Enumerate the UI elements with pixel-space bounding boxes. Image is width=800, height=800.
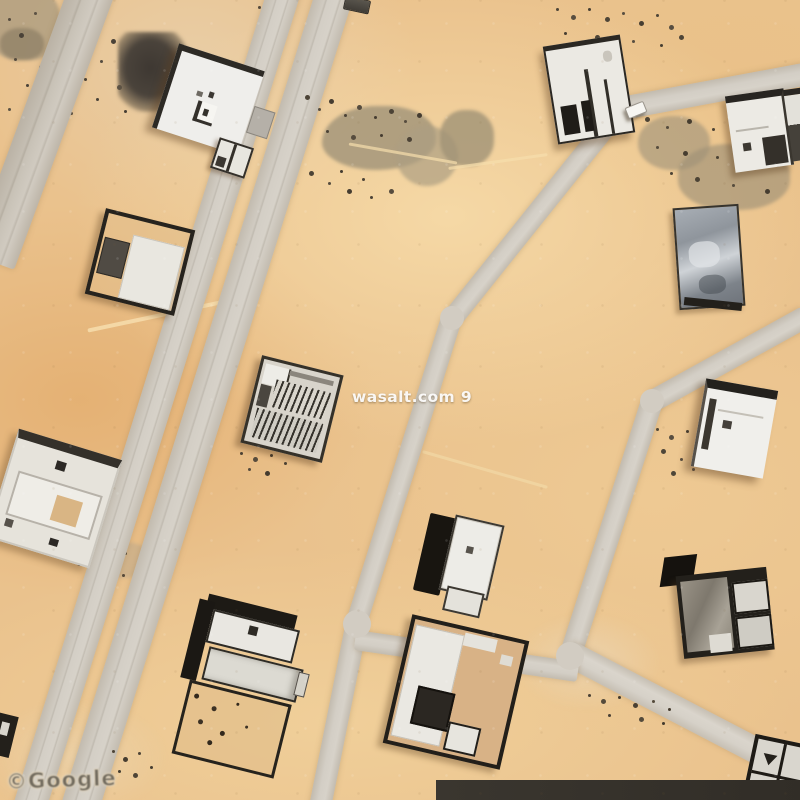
hut-ridge xyxy=(226,144,238,172)
road-junction xyxy=(640,389,664,413)
sand-track xyxy=(422,450,548,489)
party-wall xyxy=(604,79,616,134)
roof-vent xyxy=(743,142,752,151)
vegetation-specks xyxy=(236,446,239,449)
road-junction xyxy=(440,306,464,330)
building-dark-compound-east xyxy=(659,547,780,668)
roof-vent xyxy=(4,518,14,528)
building-under-construction xyxy=(240,355,343,463)
white-cell xyxy=(443,721,482,757)
scrub-patch xyxy=(440,110,494,166)
hut-dark-cell xyxy=(215,155,227,168)
roof-vent xyxy=(49,537,60,546)
satellite-map[interactable]: wasalt.com 9 ©Google xyxy=(0,0,800,800)
roof-strip xyxy=(462,633,498,653)
imagery-attribution-watermark: ©Google xyxy=(6,766,117,794)
vegetation-specks xyxy=(582,688,585,691)
bottom-dark-band xyxy=(436,780,800,800)
road-junction xyxy=(556,642,584,670)
platform-stain xyxy=(698,274,727,295)
compound-walls xyxy=(676,567,774,660)
road-junction xyxy=(343,610,371,638)
building-house-east xyxy=(691,378,778,478)
platform-stain xyxy=(688,241,721,269)
dark-cell xyxy=(560,104,581,136)
building-house-center xyxy=(410,509,503,617)
vegetation-specks xyxy=(0,0,3,3)
courtyard-trees xyxy=(192,683,196,687)
shadow-strip xyxy=(701,398,717,450)
white-cell xyxy=(731,578,771,614)
vegetation-specks xyxy=(300,86,303,89)
roof-vent xyxy=(722,420,732,429)
dark-triangle xyxy=(762,753,778,767)
white-cell xyxy=(709,633,732,654)
white-cell xyxy=(499,654,513,666)
brand-watermark: wasalt.com 9 xyxy=(352,388,472,406)
roof-dome xyxy=(602,50,613,62)
roof-line xyxy=(735,126,769,133)
dark-cell xyxy=(762,134,789,165)
concrete-foundation-platform xyxy=(673,204,746,310)
white-sliver xyxy=(0,722,10,736)
roof-vent xyxy=(54,460,66,472)
vegetation-specks xyxy=(548,2,551,5)
courtyard-trees xyxy=(415,619,419,623)
vegetation-specks xyxy=(252,2,255,5)
building-duplex-north xyxy=(543,35,636,145)
rocky-patch xyxy=(0,28,44,60)
vegetation-specks xyxy=(108,744,111,747)
building-compound-south-west xyxy=(162,589,329,783)
roof-line xyxy=(718,409,764,419)
white-cell xyxy=(735,613,775,649)
